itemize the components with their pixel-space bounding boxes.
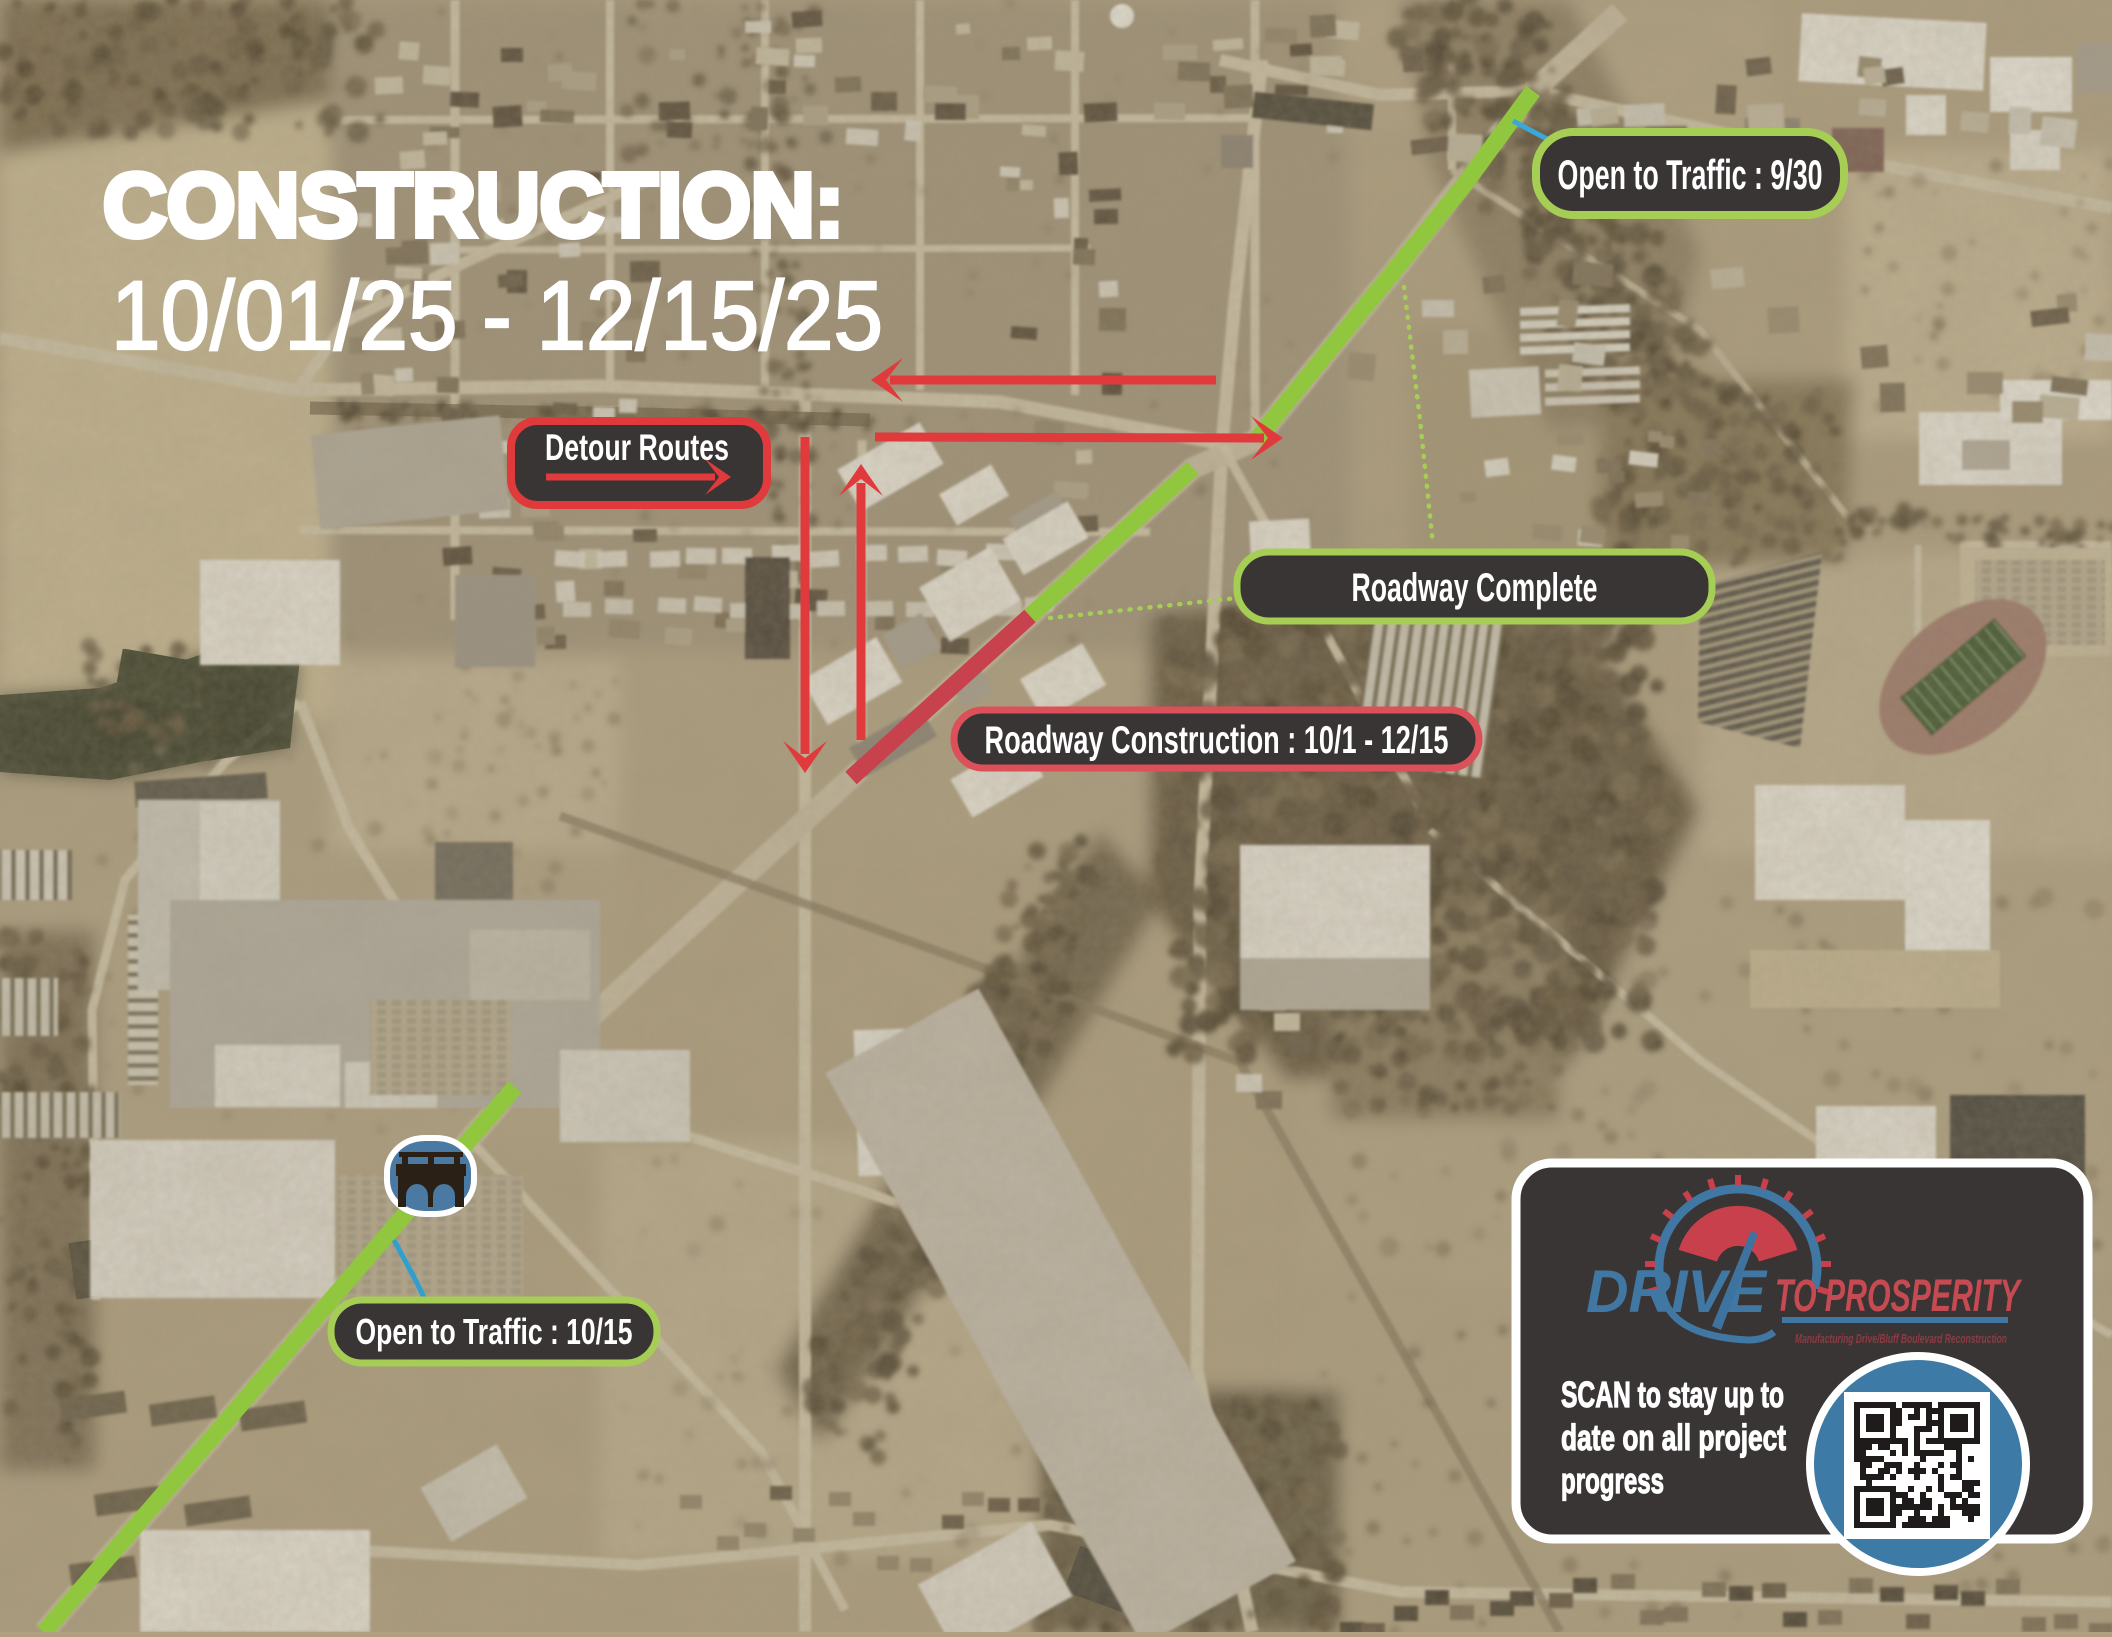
svg-text:Detour Routes: Detour Routes [545, 427, 729, 468]
svg-text:Roadway Construction : 10/1 -: Roadway Construction : 10/1 - 12/15 [985, 719, 1449, 762]
svg-text:10/01/25 - 12/15/25: 10/01/25 - 12/15/25 [111, 261, 883, 370]
svg-text:Manufacturing Drive/Bluff Boul: Manufacturing Drive/Bluff Boulevard Reco… [1795, 1332, 2007, 1346]
svg-text:TO PROSPERITY: TO PROSPERITY [1775, 1270, 2023, 1321]
svg-text:Open to Traffic : 9/30: Open to Traffic : 9/30 [1558, 151, 1823, 198]
svg-text:date on all project: date on all project [1561, 1417, 1786, 1458]
svg-text:Roadway Complete: Roadway Complete [1352, 566, 1598, 610]
svg-text:SCAN to stay up to: SCAN to stay up to [1561, 1374, 1784, 1415]
svg-text:CONSTRUCTION:: CONSTRUCTION: [103, 156, 844, 256]
svg-text:Open to Traffic : 10/15: Open to Traffic : 10/15 [356, 1311, 633, 1352]
svg-text:progress: progress [1561, 1460, 1664, 1501]
